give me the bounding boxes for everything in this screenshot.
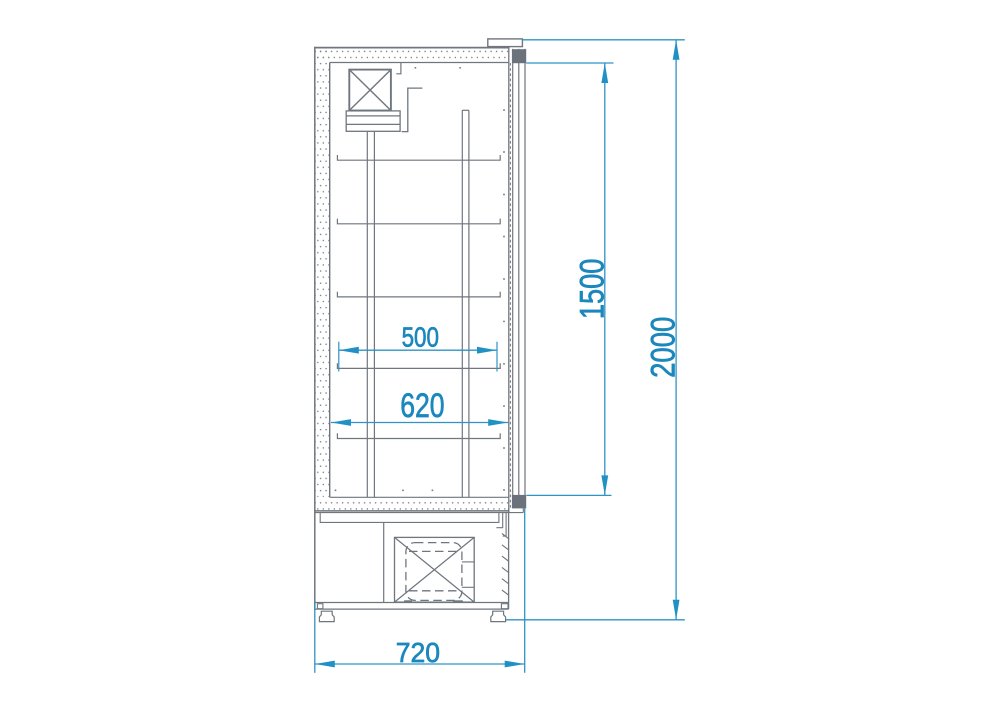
svg-text:500: 500 (402, 321, 439, 352)
svg-text:620: 620 (400, 387, 444, 425)
svg-text:1500: 1500 (574, 259, 612, 320)
svg-text:2000: 2000 (644, 317, 682, 378)
svg-text:720: 720 (396, 637, 440, 668)
